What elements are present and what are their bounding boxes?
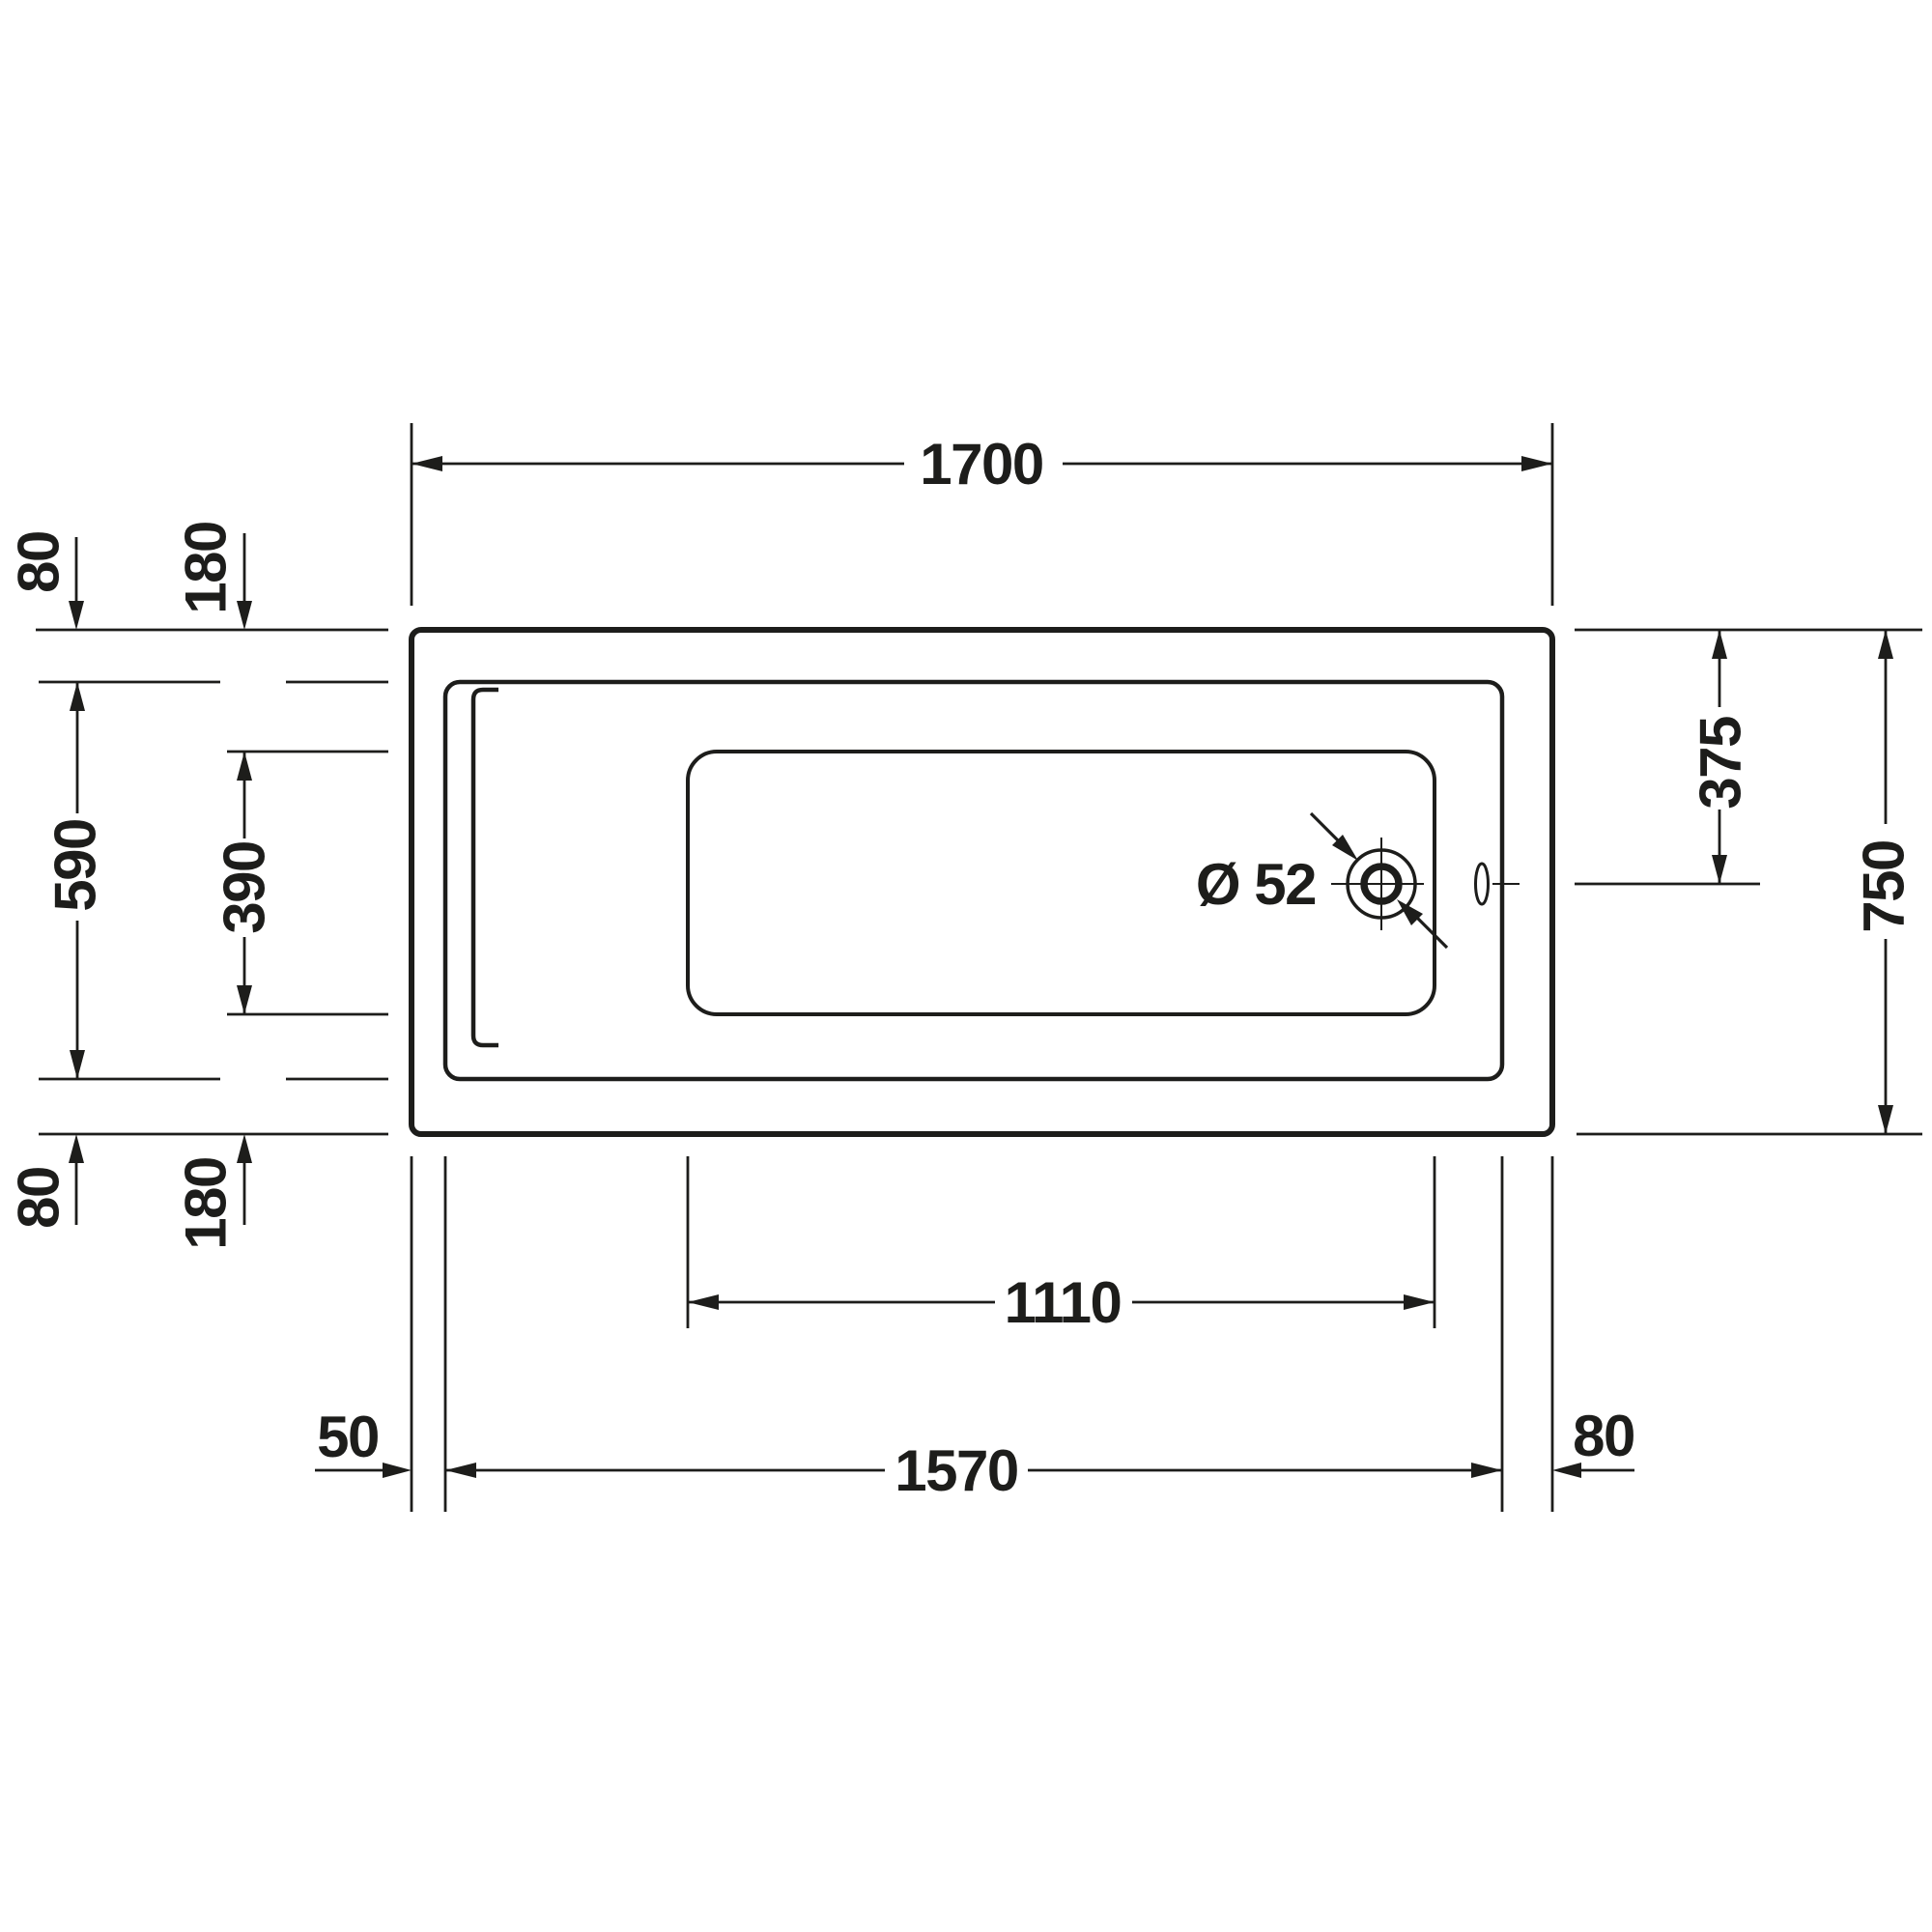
- dim-inner-rim-width: 590: [43, 682, 108, 1079]
- drain: Ø 52: [1196, 813, 1520, 948]
- inner-rim-length-label: 1570: [895, 1438, 1017, 1503]
- arrowhead-right-icon: [383, 1463, 412, 1478]
- dim-head-end-offset: 50: [315, 1405, 412, 1478]
- arrowhead-down-icon: [1712, 855, 1727, 884]
- arrowhead-up-icon: [1878, 630, 1893, 659]
- arrowhead-up-icon: [1712, 630, 1727, 659]
- overall-length-label: 1700: [920, 432, 1042, 497]
- dim-inner-rim-length: 1570: [445, 1438, 1502, 1503]
- bottom-basin-offset-label: 180: [174, 1157, 239, 1250]
- dim-bottom-basin-offset: 180: [174, 1134, 253, 1250]
- dim-bottom-rim-offset: 80: [7, 1134, 85, 1229]
- dim-top-rim-offset: 80: [7, 531, 85, 630]
- arrowhead-down-icon: [69, 601, 84, 630]
- arrowhead-left-icon: [412, 456, 442, 471]
- arrowhead-up-icon: [69, 1134, 84, 1163]
- dim-top-basin-offset: 180: [174, 522, 253, 630]
- top-rim-offset-label: 80: [7, 531, 71, 593]
- bathtub-dimension-drawing: Ø 52 1700 80 180 80: [0, 0, 1932, 1932]
- arrowhead-up-icon: [237, 1134, 252, 1163]
- tub-inner-rim-edge: [445, 682, 1502, 1079]
- arrowhead-up-icon: [70, 682, 85, 711]
- head-end-offset-label: 50: [317, 1405, 379, 1469]
- arrowhead-down-icon: [237, 985, 252, 1014]
- arrowhead-down-icon: [237, 601, 252, 630]
- dim-basin-floor-length: 1110: [688, 1270, 1435, 1335]
- overall-width-label: 750: [1852, 840, 1917, 933]
- basin-width-label: 390: [213, 841, 277, 934]
- drain-diameter-label: Ø 52: [1196, 852, 1316, 917]
- dim-drain-center-offset: 375: [1689, 630, 1753, 884]
- foot-end-offset-label: 80: [1573, 1404, 1634, 1468]
- arrowhead-right-icon: [1404, 1294, 1435, 1310]
- dim-basin-width: 390: [213, 752, 277, 1014]
- dim-overall-length: 1700: [412, 423, 1552, 606]
- arrowhead-down-icon: [1878, 1105, 1893, 1134]
- tub-basin-floor-edge: [688, 752, 1435, 1014]
- bottom-rim-offset-label: 80: [7, 1167, 71, 1229]
- dim-foot-end-offset: 80: [1552, 1404, 1634, 1478]
- arrowhead-left-icon: [688, 1294, 719, 1310]
- drain-center-offset-label: 375: [1689, 717, 1753, 810]
- arrowhead-right-icon: [1521, 456, 1552, 471]
- overflow-slot-icon: [1476, 864, 1489, 904]
- dim-overall-width: 750: [1852, 630, 1917, 1134]
- top-basin-offset-label: 180: [174, 522, 239, 614]
- arrowhead-down-icon: [70, 1050, 85, 1079]
- arrowhead-right-icon: [1471, 1463, 1502, 1478]
- headrest-bracket: [473, 690, 498, 1045]
- basin-floor-length-label: 1110: [1005, 1270, 1122, 1335]
- inner-rim-width-label: 590: [43, 819, 108, 912]
- arrowhead-up-icon: [237, 752, 252, 781]
- arrowhead-left-icon: [445, 1463, 476, 1478]
